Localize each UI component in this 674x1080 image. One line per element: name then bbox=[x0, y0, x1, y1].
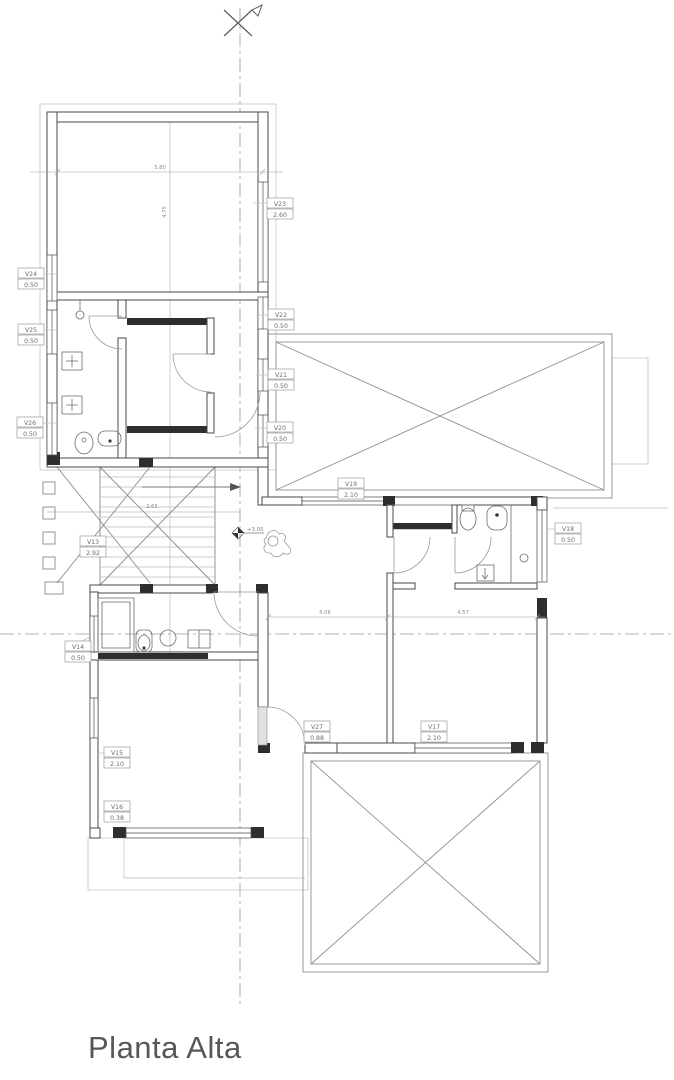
door-bathroom-2 bbox=[455, 537, 491, 573]
window-v23 bbox=[258, 182, 268, 282]
svg-text:2.10: 2.10 bbox=[344, 492, 358, 499]
svg-text:2.92: 2.92 bbox=[86, 550, 100, 557]
double-height-void bbox=[268, 334, 612, 498]
svg-text:V20: V20 bbox=[274, 425, 286, 432]
dim-bedroom-height: 4.75 bbox=[162, 206, 168, 218]
svg-text:V17: V17 bbox=[428, 724, 440, 731]
svg-text:0.50: 0.50 bbox=[71, 655, 85, 662]
level-value: +3.05 bbox=[247, 527, 264, 533]
svg-text:0.50: 0.50 bbox=[273, 436, 287, 443]
svg-text:0.50: 0.50 bbox=[23, 431, 37, 438]
svg-text:V13: V13 bbox=[87, 539, 99, 546]
door-hall bbox=[214, 592, 258, 636]
window-tag-v16: V16 0.38 bbox=[104, 801, 130, 822]
window-v22 bbox=[258, 297, 268, 329]
door-v27 bbox=[258, 707, 305, 745]
person-sketch bbox=[264, 531, 291, 557]
pergola-posts bbox=[43, 467, 150, 594]
dim-bedroom-width: 5.80 bbox=[154, 165, 166, 171]
svg-text:V21: V21 bbox=[275, 372, 287, 379]
page-title: Planta Alta bbox=[88, 1030, 242, 1066]
svg-text:2.60: 2.60 bbox=[273, 212, 287, 219]
window-tag-v15: V15 2.10 bbox=[98, 747, 130, 768]
svg-text:0.38: 0.38 bbox=[110, 815, 124, 822]
svg-text:V23: V23 bbox=[274, 201, 286, 208]
window-v16 bbox=[126, 828, 251, 838]
window-tag-v19: V19 2.10 bbox=[338, 478, 364, 499]
floor-plan-canvas: +3.05 5.80 4.75 5.06 4.57 2.65 V23 2.60 … bbox=[0, 0, 674, 1080]
svg-text:0.50: 0.50 bbox=[561, 537, 575, 544]
door-dressing bbox=[173, 354, 211, 392]
window-tag-v13: V13 2.92 bbox=[80, 536, 106, 557]
bathroom-3-fixtures bbox=[98, 598, 210, 652]
window-v24 bbox=[47, 255, 57, 301]
axis-lines bbox=[0, 8, 674, 1005]
svg-text:0.88: 0.88 bbox=[310, 735, 324, 742]
svg-text:V19: V19 bbox=[345, 481, 357, 488]
window-v26 bbox=[47, 403, 57, 455]
stair-direction-arrow-icon bbox=[230, 483, 241, 491]
svg-text:V25: V25 bbox=[25, 327, 37, 334]
walls-middle bbox=[262, 496, 547, 753]
svg-text:V15: V15 bbox=[111, 750, 123, 757]
svg-text:V26: V26 bbox=[24, 420, 36, 427]
svg-text:V16: V16 bbox=[111, 804, 123, 811]
dimension-lines: 5.80 4.75 5.06 4.57 2.65 bbox=[30, 165, 545, 620]
walls-lower-left bbox=[90, 584, 270, 838]
terrace-roof-below bbox=[303, 753, 548, 972]
svg-text:0.50: 0.50 bbox=[24, 282, 38, 289]
door-bathroom-1 bbox=[89, 316, 122, 349]
dim-hall-left: 5.06 bbox=[319, 610, 331, 616]
walls-lower-right bbox=[305, 742, 544, 753]
level-marker: +3.05 bbox=[232, 527, 264, 539]
window-v18 bbox=[537, 510, 547, 582]
door-bedroom-2 bbox=[394, 537, 430, 573]
svg-text:0.50: 0.50 bbox=[274, 383, 288, 390]
dim-hall-right: 4.57 bbox=[457, 610, 469, 616]
window-v17 bbox=[415, 743, 513, 753]
window-tag-v27: V27 0.88 bbox=[304, 721, 330, 742]
bathroom-1-fixtures bbox=[62, 300, 121, 454]
door-upper-bedroom bbox=[215, 392, 260, 437]
staircase bbox=[100, 467, 241, 585]
svg-text:V14: V14 bbox=[72, 644, 84, 651]
svg-text:2.10: 2.10 bbox=[427, 735, 441, 742]
floor-plan-page: +3.05 5.80 4.75 5.06 4.57 2.65 V23 2.60 … bbox=[0, 0, 674, 1080]
window-v15 bbox=[90, 698, 98, 738]
north-arrow-icon bbox=[224, 5, 262, 36]
dim-stair-width: 2.65 bbox=[146, 504, 158, 510]
svg-text:V24: V24 bbox=[25, 271, 37, 278]
window-v25 bbox=[47, 310, 57, 354]
svg-text:0.50: 0.50 bbox=[274, 323, 288, 330]
svg-text:V18: V18 bbox=[562, 526, 574, 533]
window-tag-v18: V18 0.50 bbox=[547, 523, 581, 544]
window-tag-v14: V14 0.50 bbox=[65, 637, 91, 662]
svg-text:V22: V22 bbox=[275, 312, 287, 319]
window-v20 bbox=[258, 415, 268, 447]
svg-text:2.10: 2.10 bbox=[110, 761, 124, 768]
svg-text:V27: V27 bbox=[311, 724, 323, 731]
window-tag-v17: V17 2.10 bbox=[421, 721, 447, 742]
svg-text:0.50: 0.50 bbox=[24, 338, 38, 345]
